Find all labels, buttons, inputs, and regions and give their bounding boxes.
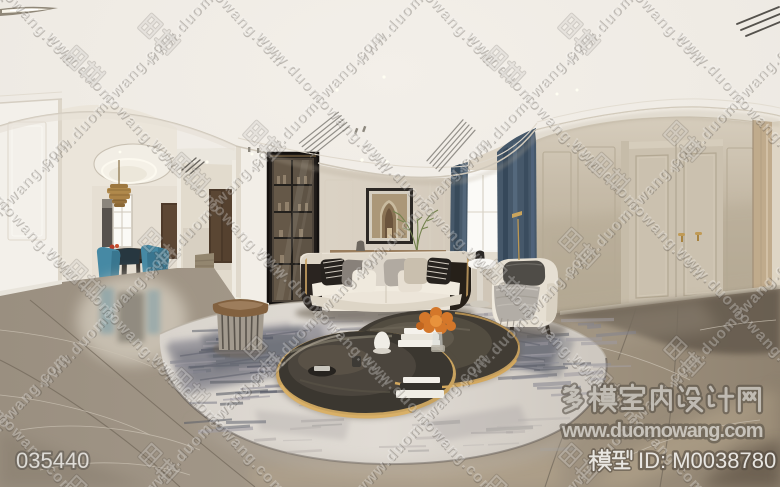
svg-text:035440: 035440	[16, 448, 89, 473]
svg-text:ID: M0038780: ID: M0038780	[638, 448, 776, 473]
svg-text:www.duomowang.com: www.duomowang.com	[561, 420, 763, 442]
